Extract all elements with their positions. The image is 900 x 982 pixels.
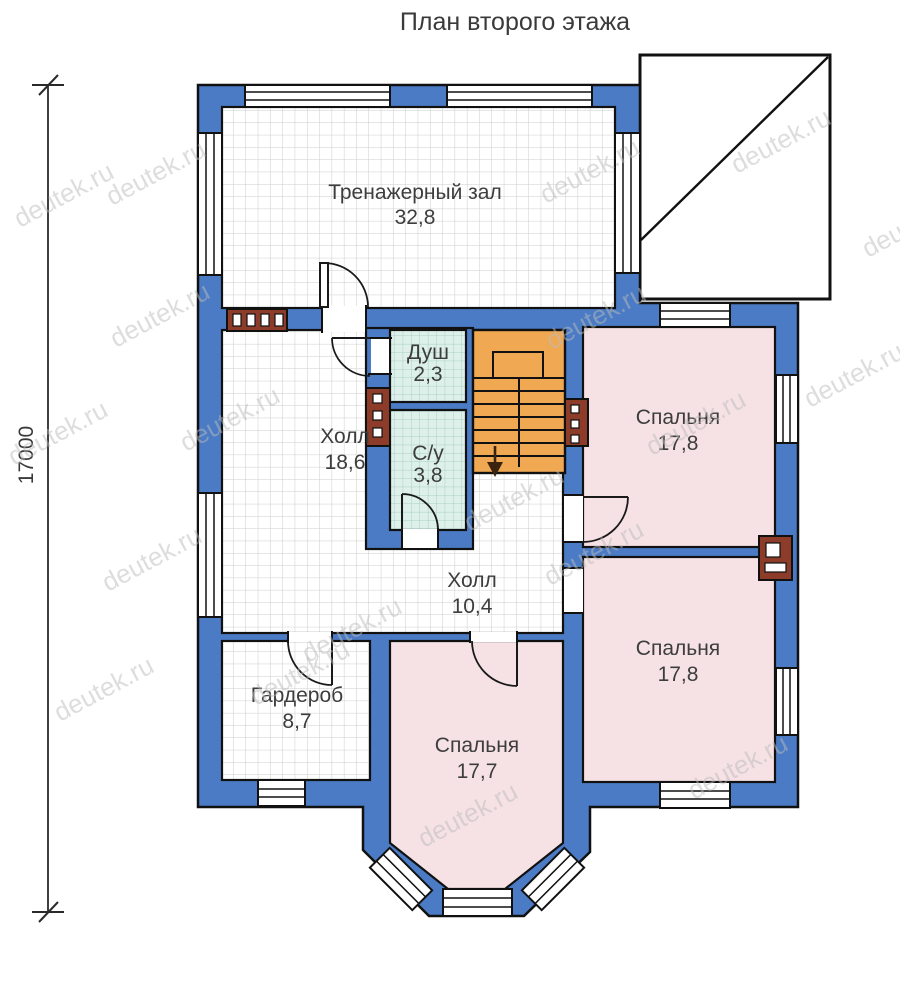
roof-outline xyxy=(640,55,830,299)
room-gym-area: 32,8 xyxy=(395,206,436,229)
room-bedroom2-area: 17,8 xyxy=(658,663,699,686)
room-hall1-area: 18,6 xyxy=(325,451,366,474)
room-bedroom3-area: 17,7 xyxy=(457,760,498,783)
window xyxy=(776,668,798,735)
room-wardrobe-area: 8,7 xyxy=(282,710,311,733)
watermark-text: deutek.ru xyxy=(9,156,119,233)
door-opening xyxy=(402,528,438,549)
window xyxy=(198,493,222,617)
watermark-text: deutek.ru xyxy=(799,336,900,413)
window xyxy=(660,303,730,327)
room-shower-area: 2,3 xyxy=(413,363,442,386)
door-opening xyxy=(470,631,517,643)
room-hall1-label: Холл xyxy=(320,425,370,448)
watermark-text: deutek.ru xyxy=(49,650,159,727)
ventilation-shaft-icon xyxy=(227,309,287,331)
room-hall2-label: Холл xyxy=(447,569,497,592)
room-bedroom2-label: Спальня xyxy=(636,637,720,660)
ventilation-shaft-icon xyxy=(565,399,588,446)
window xyxy=(245,85,390,107)
watermark-text: deutek.ru xyxy=(101,134,211,211)
watermark-text: deutek.ru xyxy=(857,186,900,263)
door-opening xyxy=(562,495,584,542)
room-hall2-area: 10,4 xyxy=(452,595,493,618)
window xyxy=(776,375,798,443)
staircase xyxy=(473,330,565,477)
room-wc-area: 3,8 xyxy=(413,464,442,487)
ventilation-shaft-icon xyxy=(759,536,792,580)
floor-plan-page: Тренажерный зал 32,8 Душ 2,3 Холл 18,6 С… xyxy=(0,0,900,982)
room-shower-label: Душ xyxy=(407,341,449,364)
room-wc-label: С/у xyxy=(412,442,444,465)
watermark-text: deutek.ru xyxy=(97,520,207,597)
door-opening xyxy=(368,337,392,375)
page-title: План второго этажа xyxy=(400,8,630,36)
room-bedroom3-label: Спальня xyxy=(435,734,519,757)
room-gym-label: Тренажерный зал xyxy=(328,181,502,204)
window xyxy=(447,85,592,107)
door-opening xyxy=(322,305,366,333)
window xyxy=(258,780,305,806)
window xyxy=(443,889,512,916)
floor-plan-drawing: Тренажерный зал 32,8 Душ 2,3 Холл 18,6 С… xyxy=(0,0,900,982)
